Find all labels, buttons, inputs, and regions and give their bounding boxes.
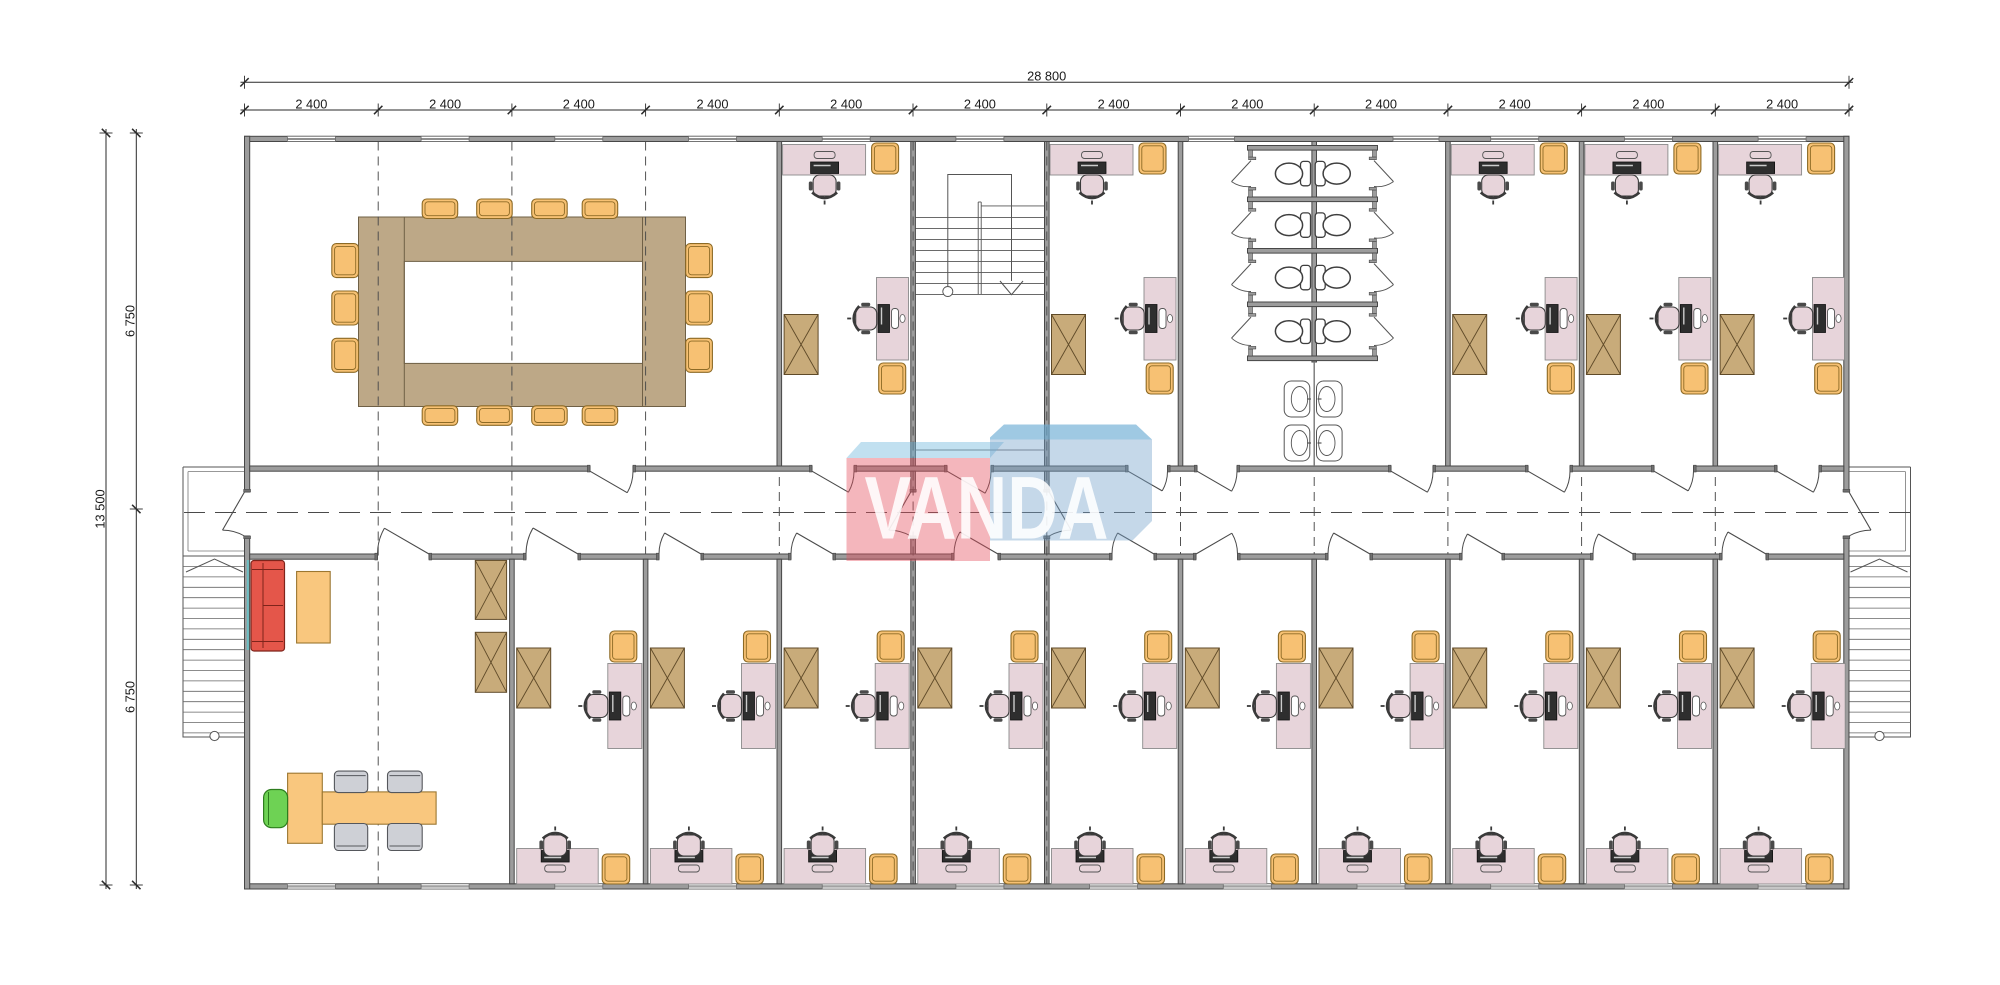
svg-text:6 750: 6 750 <box>123 305 138 337</box>
svg-text:28 800: 28 800 <box>1027 69 1066 84</box>
svg-text:2 400: 2 400 <box>1499 96 1531 111</box>
svg-text:2 400: 2 400 <box>830 96 862 111</box>
svg-text:6 750: 6 750 <box>123 681 138 713</box>
svg-text:2 400: 2 400 <box>295 96 327 111</box>
svg-text:VANDA: VANDA <box>865 458 1109 558</box>
svg-text:2 400: 2 400 <box>429 96 461 111</box>
svg-text:2 400: 2 400 <box>964 96 996 111</box>
svg-text:2 400: 2 400 <box>696 96 728 111</box>
svg-text:2 400: 2 400 <box>1231 96 1263 111</box>
svg-text:2 400: 2 400 <box>1632 96 1664 111</box>
svg-text:2 400: 2 400 <box>1766 96 1798 111</box>
svg-text:2 400: 2 400 <box>1098 96 1130 111</box>
svg-text:13 500: 13 500 <box>92 489 107 528</box>
svg-text:2 400: 2 400 <box>1365 96 1397 111</box>
svg-text:2 400: 2 400 <box>563 96 595 111</box>
